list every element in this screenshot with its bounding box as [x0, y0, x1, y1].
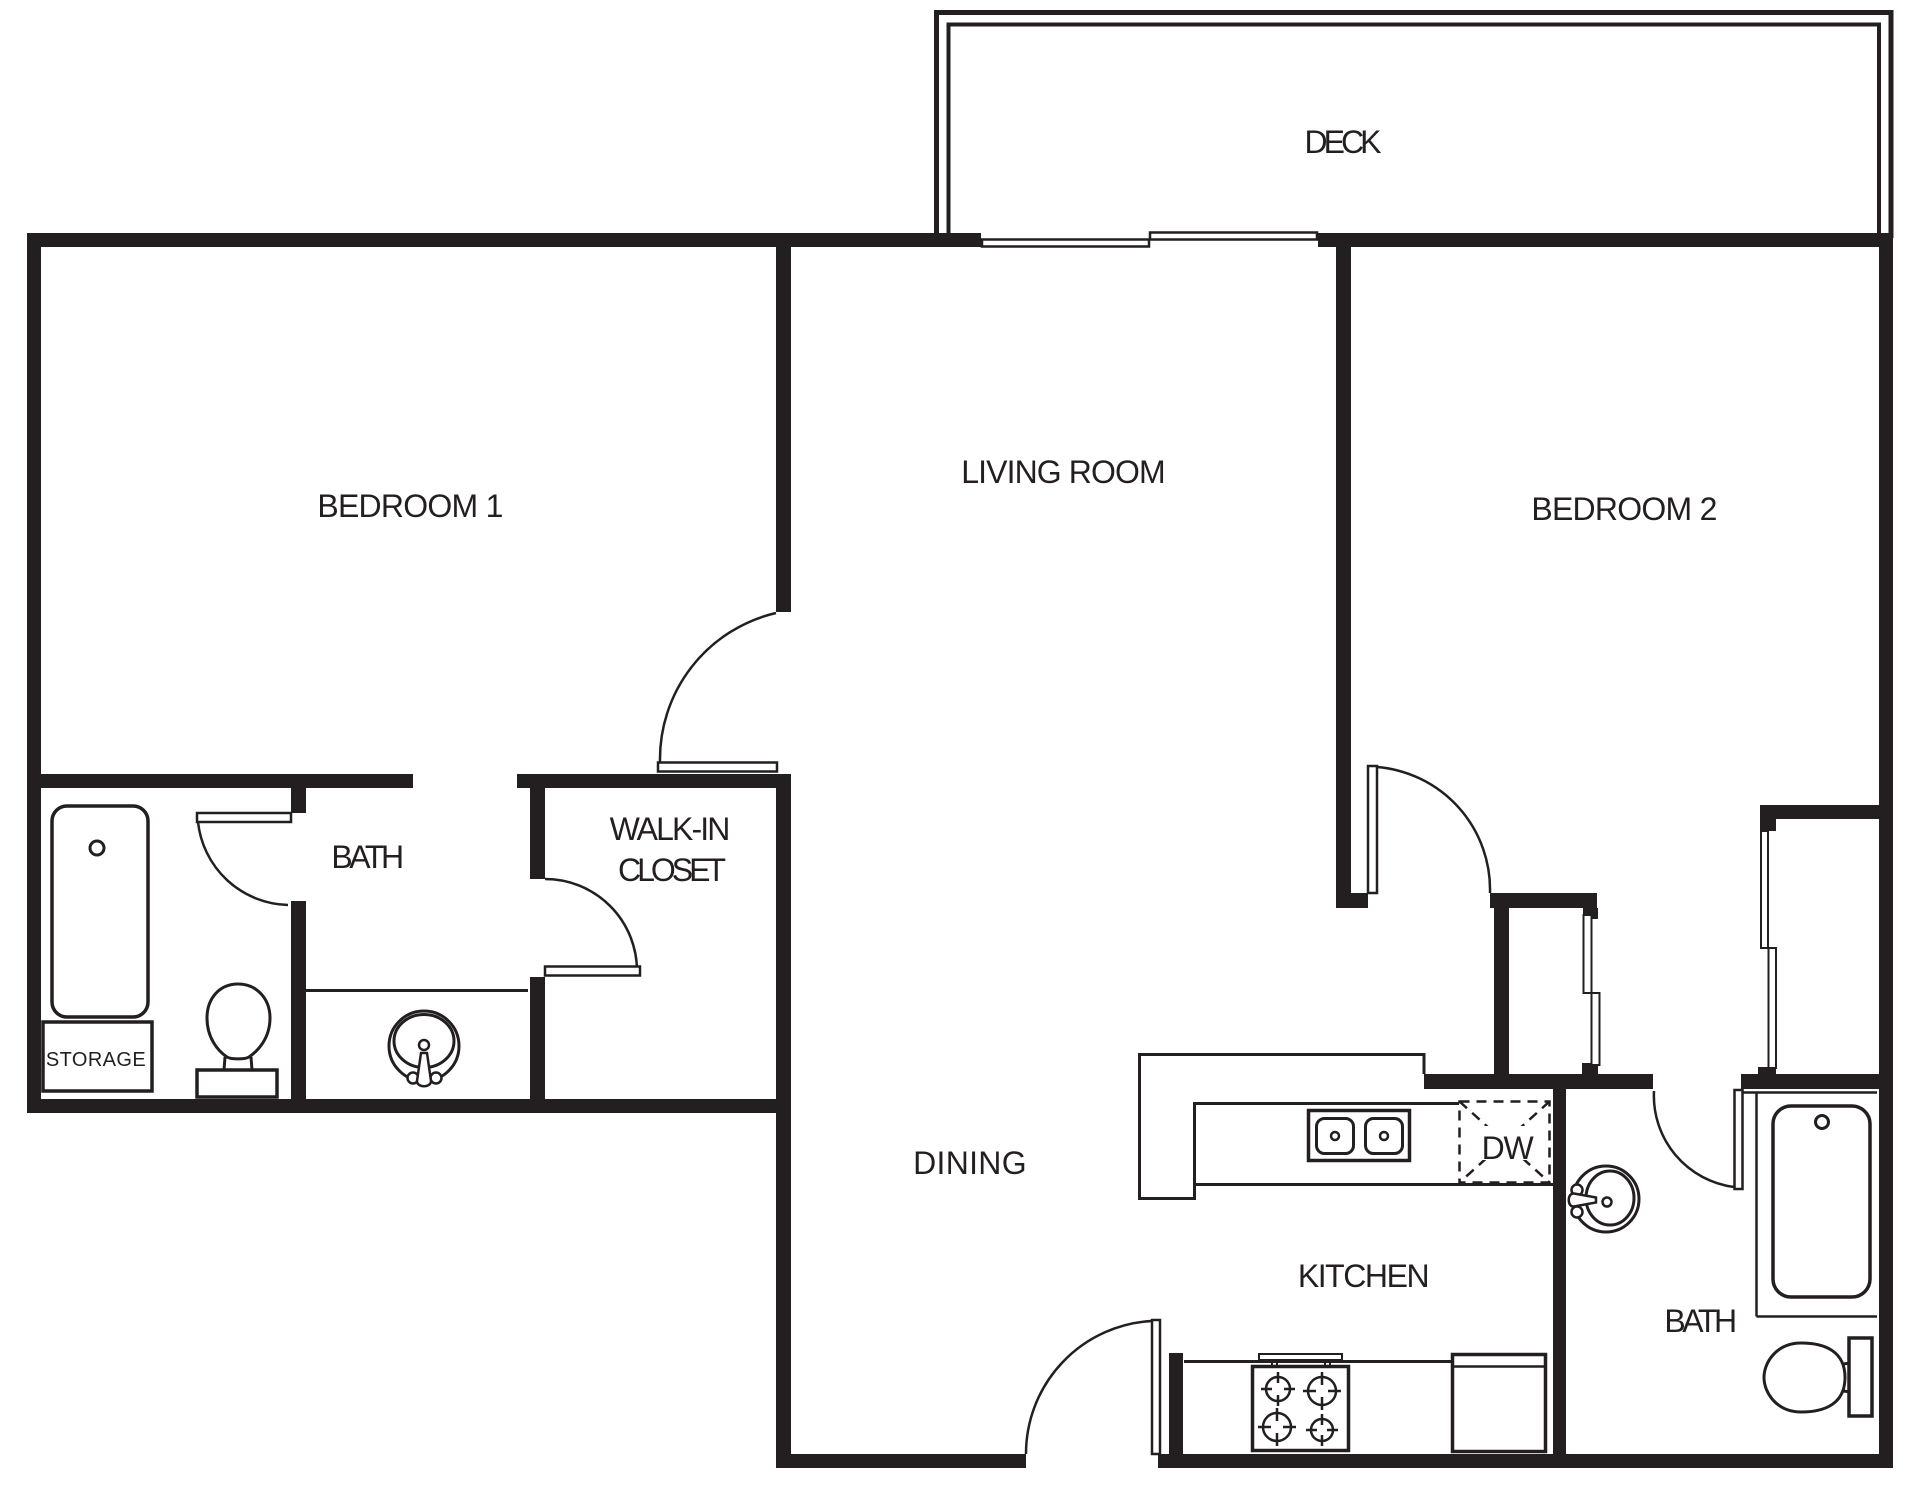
svg-text:DECK: DECK	[1305, 124, 1382, 160]
svg-text:BATH: BATH	[331, 839, 402, 875]
svg-text:BEDROOM 1: BEDROOM 1	[317, 488, 502, 524]
svg-text:STORAGE: STORAGE	[46, 1049, 146, 1071]
svg-text:CLOSET: CLOSET	[618, 852, 725, 888]
svg-text:BEDROOM 2: BEDROOM 2	[1531, 491, 1716, 527]
svg-text:KITCHEN: KITCHEN	[1298, 1258, 1428, 1294]
svg-text:LIVING ROOM: LIVING ROOM	[961, 454, 1164, 490]
svg-text:DW: DW	[1482, 1130, 1535, 1166]
svg-text:DINING: DINING	[913, 1145, 1027, 1181]
svg-text:BATH: BATH	[1664, 1303, 1735, 1339]
svg-text:WALK-IN: WALK-IN	[610, 811, 729, 847]
